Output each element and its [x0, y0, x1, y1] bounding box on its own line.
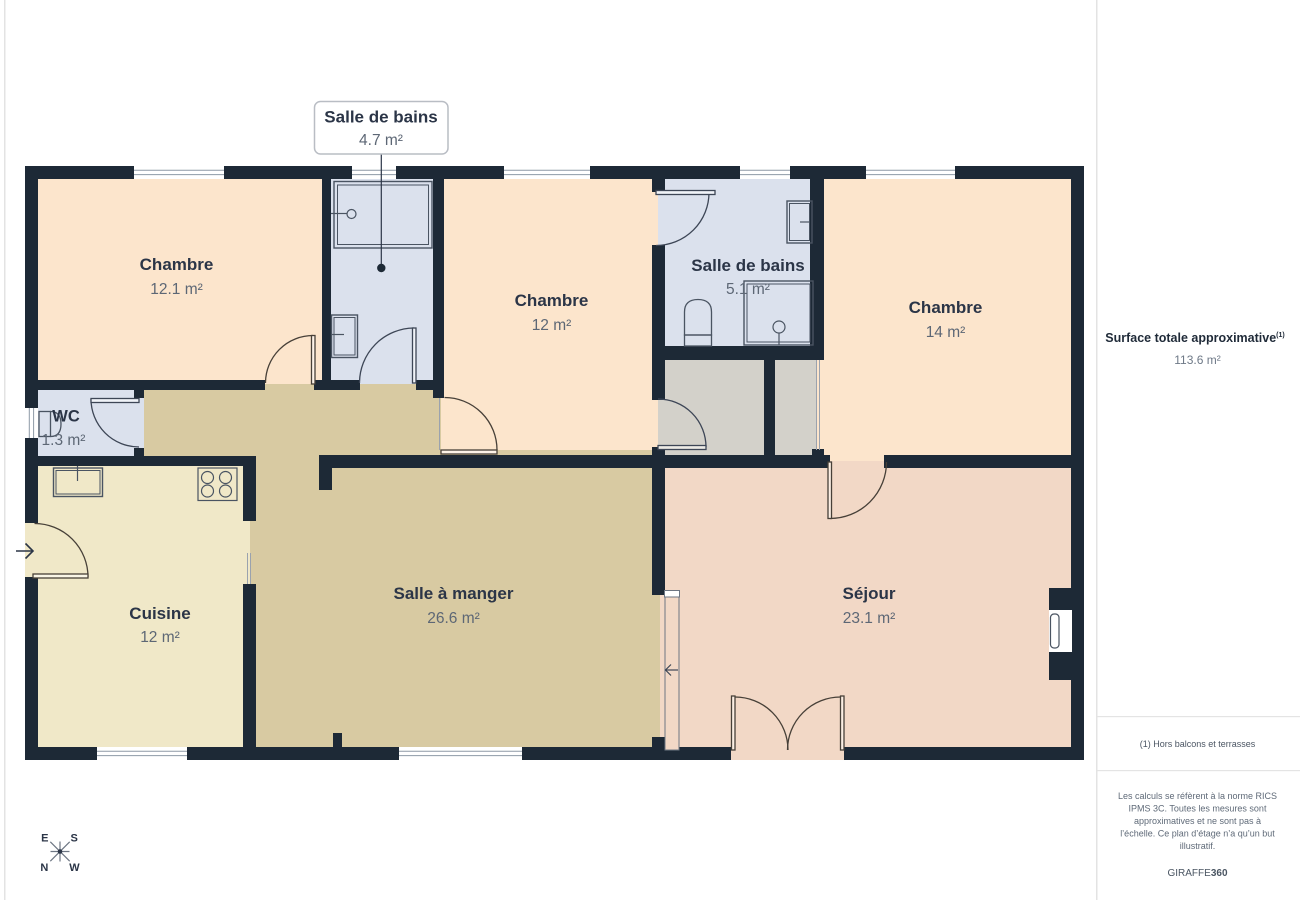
- svg-text:4.7 m²: 4.7 m²: [359, 132, 403, 149]
- svg-text:Cuisine: Cuisine: [129, 604, 190, 623]
- svg-text:Salle de bains: Salle de bains: [324, 108, 437, 127]
- svg-text:5.1 m²: 5.1 m²: [726, 281, 770, 298]
- svg-text:IPMS 3C. Toutes les mesures so: IPMS 3C. Toutes les mesures sont: [1129, 804, 1267, 814]
- svg-text:Chambre: Chambre: [140, 255, 214, 274]
- svg-text:12 m²: 12 m²: [140, 629, 180, 646]
- svg-text:1.3 m²: 1.3 m²: [42, 432, 86, 449]
- svg-text:23.1 m²: 23.1 m²: [843, 610, 896, 627]
- svg-text:26.6 m²: 26.6 m²: [427, 610, 480, 627]
- svg-text:12 m²: 12 m²: [532, 317, 572, 334]
- svg-text:GIRAFFE360: GIRAFFE360: [1167, 868, 1227, 879]
- svg-text:illustratif.: illustratif.: [1180, 841, 1216, 851]
- svg-text:N: N: [40, 862, 48, 874]
- svg-text:12.1 m²: 12.1 m²: [150, 281, 203, 298]
- svg-text:Salle de bains: Salle de bains: [691, 256, 804, 275]
- svg-text:14 m²: 14 m²: [926, 324, 966, 341]
- svg-text:Surface totale approximative(1: Surface totale approximative(1): [1105, 331, 1284, 345]
- svg-text:Chambre: Chambre: [515, 291, 589, 310]
- svg-text:S: S: [71, 833, 78, 845]
- svg-text:E: E: [41, 833, 48, 845]
- svg-text:WC: WC: [52, 408, 80, 426]
- svg-text:l’échelle. Ce plan d’étage n’a: l’échelle. Ce plan d’étage n’a qu’un but: [1120, 829, 1275, 839]
- svg-text:Séjour: Séjour: [843, 584, 896, 603]
- svg-text:113.6 m²: 113.6 m²: [1174, 353, 1220, 367]
- svg-text:Les calculs se réfèrent à la n: Les calculs se réfèrent à la norme RICS: [1118, 791, 1277, 801]
- svg-text:Chambre: Chambre: [909, 298, 983, 317]
- svg-text:(1) Hors balcons et terrasses: (1) Hors balcons et terrasses: [1140, 739, 1256, 749]
- svg-text:approximatives et ne sont pas: approximatives et ne sont pas à: [1134, 816, 1261, 826]
- svg-text:W: W: [69, 862, 80, 874]
- svg-text:Salle à manger: Salle à manger: [393, 584, 513, 603]
